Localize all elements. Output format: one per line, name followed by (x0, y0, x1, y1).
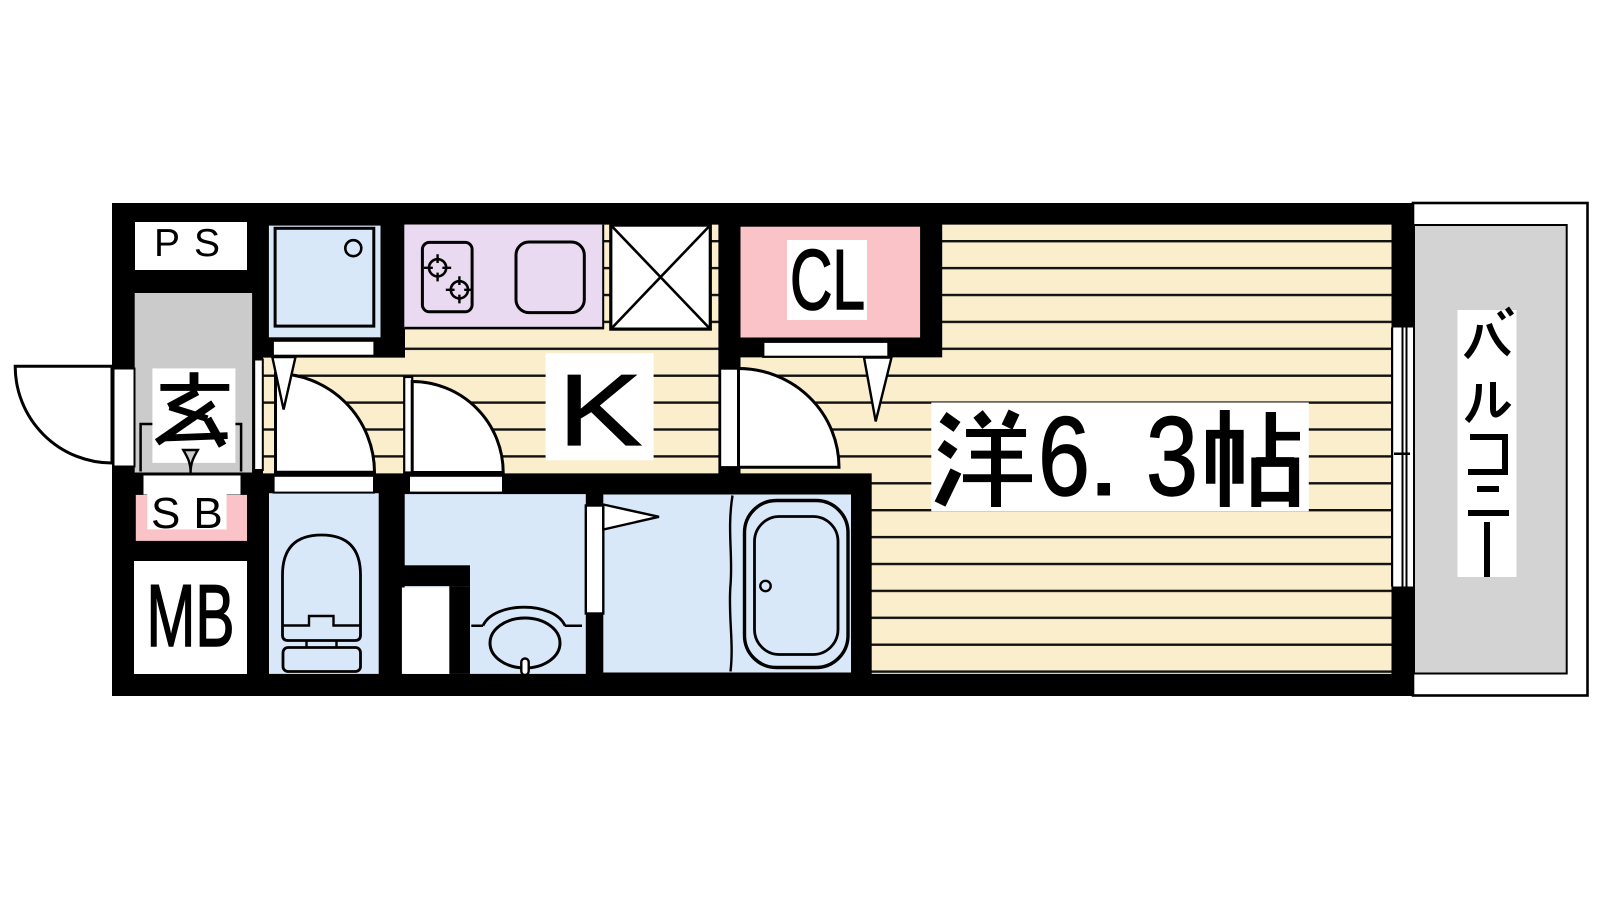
svg-text:MB: MB (147, 566, 235, 665)
svg-text:SB: SB (151, 489, 236, 538)
svg-text:PS: PS (154, 222, 234, 265)
svg-text:6: 6 (1038, 394, 1090, 519)
svg-text:K: K (558, 355, 642, 467)
svg-text:CL: CL (790, 233, 865, 328)
svg-text:3: 3 (1146, 394, 1198, 519)
